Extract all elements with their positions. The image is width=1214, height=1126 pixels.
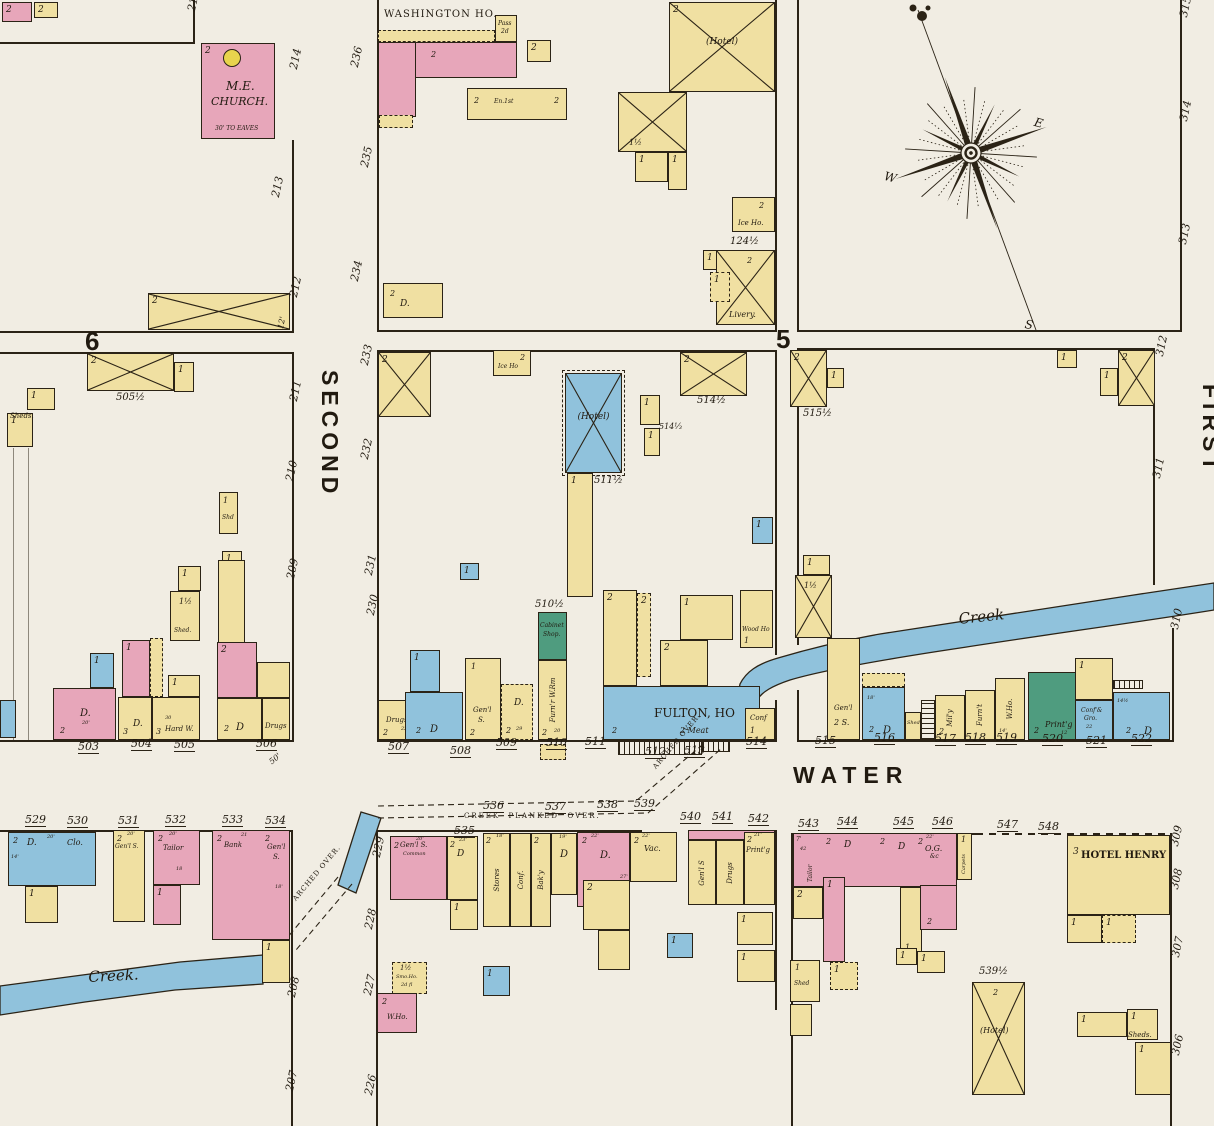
building-label: 2 xyxy=(91,357,97,366)
building-label: 23' xyxy=(459,838,467,843)
map-label: 533 xyxy=(222,814,243,827)
building-label: Conf. xyxy=(517,871,525,890)
building-label: 2 xyxy=(794,354,800,363)
building-label: 20' xyxy=(169,832,177,837)
building-label: 1 xyxy=(1131,1013,1137,1022)
building-label: 7' xyxy=(796,837,801,843)
building: 1 xyxy=(917,951,945,973)
building: 223'D xyxy=(447,836,478,900)
building: 1 xyxy=(25,886,58,923)
bank-building: 2Bank212Gen'lS.18' xyxy=(212,830,290,940)
map-label: 507 xyxy=(388,741,409,754)
building: 2 xyxy=(603,590,637,686)
map-label: 227 xyxy=(362,973,377,996)
building-label: 2 xyxy=(221,646,227,655)
map-label: 211 xyxy=(288,379,303,402)
building-label: 1 xyxy=(672,156,678,165)
building-label: 1 xyxy=(639,156,645,165)
hatch-strip xyxy=(702,741,730,752)
building-label: Shed xyxy=(794,981,809,987)
map-label: 534 xyxy=(265,815,286,828)
building: 1 xyxy=(567,473,593,597)
building-label: 42 xyxy=(800,847,806,852)
building-label: 20' xyxy=(47,835,55,840)
building: 2 xyxy=(378,352,431,417)
building-label: 2 xyxy=(612,727,617,735)
building-label: 1 xyxy=(1081,1016,1087,1025)
building-label: En.1st xyxy=(494,99,513,105)
map-label: 539½ xyxy=(979,967,1008,977)
building-label: 1 xyxy=(707,254,713,263)
building-label: 2 xyxy=(382,998,387,1006)
map-label: 308 xyxy=(1169,867,1184,890)
building-label: CHURCH. xyxy=(211,96,268,107)
building-label: 2 xyxy=(554,97,559,105)
map-label: 314 xyxy=(1178,99,1193,122)
building: 2 xyxy=(790,350,827,407)
map-label: 509 xyxy=(496,737,517,750)
building-label: Mil'y xyxy=(946,709,954,727)
building-label: 2 xyxy=(531,44,537,53)
building-label: 2 xyxy=(470,729,475,737)
map-label: 504 xyxy=(131,738,152,751)
building: 1 xyxy=(703,250,717,270)
creek-planked-over-label: CREEK PLANKED OVER. xyxy=(464,813,601,820)
map-label: 234 xyxy=(349,259,364,282)
building: 1½ xyxy=(795,575,832,638)
building: 220'Gen'l S. xyxy=(113,830,145,922)
building: 2 xyxy=(583,880,630,930)
building: 221'Print'g xyxy=(744,832,775,905)
building: 1 xyxy=(640,395,660,425)
building: 330Hard W. xyxy=(152,697,200,740)
building-label: 1 xyxy=(1139,1046,1145,1055)
building: 218'Stores xyxy=(483,833,510,927)
building: Pass2d xyxy=(495,15,517,42)
map-label: 548 xyxy=(1038,821,1059,834)
building-label: 2 xyxy=(474,97,479,105)
block-line xyxy=(0,331,294,333)
block-line xyxy=(797,330,1182,332)
map-label: 313 xyxy=(1177,222,1192,245)
map-label: 503 xyxy=(78,741,99,754)
block-line xyxy=(292,140,294,333)
building: 220'Tailor18 xyxy=(153,830,200,885)
map-label: 519 xyxy=(996,732,1017,745)
building-label: D xyxy=(560,850,568,860)
building-label: 2 xyxy=(747,836,752,844)
building: 1 xyxy=(803,555,830,575)
building-label: Stores xyxy=(493,869,501,892)
hatch-strip xyxy=(921,700,935,740)
building-label: Bank xyxy=(224,842,242,849)
building: 1 xyxy=(174,362,194,392)
church-dome xyxy=(223,49,241,67)
building-label: 1 xyxy=(29,890,35,899)
building: Drugs xyxy=(262,698,290,740)
map-label: 515½ xyxy=(803,409,832,419)
building-label: Tailor xyxy=(163,845,183,852)
building-label: 1 xyxy=(94,657,100,666)
building: 2W.Ho. xyxy=(377,993,417,1033)
building-label: 1 xyxy=(172,679,178,688)
building-label: 2 xyxy=(486,837,491,845)
map-label: 508 xyxy=(450,745,471,758)
building: Gen'l2 S. xyxy=(827,638,860,740)
street-label-water: WATER xyxy=(793,764,909,787)
building: 1 xyxy=(1075,658,1113,700)
map-label: 522 xyxy=(1131,733,1152,746)
building-label: Print'g xyxy=(1045,721,1072,729)
map-label: 207 xyxy=(284,1069,299,1092)
building-label: 2 xyxy=(534,837,539,845)
building-label: (Hotel) xyxy=(706,37,738,47)
building-label: 1 xyxy=(1104,372,1110,381)
building-label: W.Ho. xyxy=(1006,699,1014,720)
building-label: 1 xyxy=(827,881,833,890)
map-label: 514½ xyxy=(697,396,726,406)
building: 1 xyxy=(1057,350,1077,368)
map-label: 545 xyxy=(893,816,914,829)
building: 1 xyxy=(668,152,687,190)
map-label: 232 xyxy=(359,437,374,460)
building xyxy=(257,662,290,698)
building: 2Gen'l S.20'Common xyxy=(390,836,447,900)
building: 1 xyxy=(830,962,858,990)
building-label: 21 xyxy=(241,833,247,838)
building: 222'Vac. xyxy=(630,832,677,882)
building: 3D. xyxy=(118,697,152,740)
building-label: 1 xyxy=(834,966,840,975)
map-label: 310 xyxy=(1169,607,1184,630)
building-label: 2 xyxy=(224,725,229,733)
map-label: 520 xyxy=(1042,733,1063,746)
building-label: D. xyxy=(133,720,143,729)
map-label: 306 xyxy=(1170,1033,1185,1056)
map-label: 511½ xyxy=(594,476,623,486)
building-label: Shed. xyxy=(174,628,191,634)
building: 1 xyxy=(410,650,440,692)
map-label: 518 xyxy=(965,732,986,745)
building-label: 2 xyxy=(416,727,421,735)
building: 2D.20'Clo.14' xyxy=(8,832,96,886)
map-label: 215 xyxy=(186,0,201,12)
building-label: 1 xyxy=(744,637,749,645)
building-label: 1 xyxy=(266,944,272,953)
building: 2D. xyxy=(383,283,443,318)
building-label: Hard W. xyxy=(165,726,194,733)
map-label: 510 xyxy=(546,737,567,750)
building-label: 22' xyxy=(926,835,934,840)
map-label: 307 xyxy=(1170,935,1185,958)
building: Wood Ho1 xyxy=(740,590,773,648)
map-label: 544 xyxy=(837,816,858,829)
building: 1 xyxy=(635,152,668,182)
building-label: 1 xyxy=(750,727,755,735)
map-label: 547 xyxy=(997,819,1018,832)
building xyxy=(862,673,905,687)
building xyxy=(378,42,416,117)
building: 19'D xyxy=(551,833,577,895)
building-label: Ice Ho. xyxy=(738,220,763,227)
building: Conf. xyxy=(510,833,531,927)
building-label: 2 xyxy=(383,729,388,737)
building-label: 2 xyxy=(60,727,65,735)
map-label: 208 xyxy=(286,975,301,998)
building: 1Shed xyxy=(790,960,820,1002)
block-line xyxy=(797,348,1155,350)
building-label: Drugs xyxy=(726,862,734,884)
building-label: 2 xyxy=(1122,354,1128,363)
building-label: 1 xyxy=(157,889,163,898)
hotel-539: 2(Hotel) xyxy=(972,982,1025,1095)
sanborn-map: 222M.E.CHURCH.30' TO EAVES22Pass2d22En.1… xyxy=(0,0,1214,1126)
building-label: 20' xyxy=(416,837,424,842)
building: 2 xyxy=(660,640,708,686)
block-line xyxy=(13,448,14,740)
building-label: 14½ xyxy=(1117,699,1128,704)
building-label: &c xyxy=(930,854,939,860)
map-label: 505½ xyxy=(116,393,145,403)
map-label: 514⅓ xyxy=(659,423,682,431)
building-label: 22' xyxy=(591,834,599,839)
building: 2 xyxy=(87,353,174,391)
building-label: 1 xyxy=(1071,919,1077,928)
building: 1 xyxy=(1077,1012,1127,1037)
building-label: D xyxy=(457,850,464,859)
building-label: 2 xyxy=(664,644,670,653)
building-label: 2 xyxy=(927,918,932,926)
block-line xyxy=(775,350,777,655)
building-label: 18' xyxy=(275,885,283,890)
ice-house: 2Ice Ho. xyxy=(732,197,775,232)
building-label: D xyxy=(430,725,438,735)
building: 1 xyxy=(900,887,922,955)
building xyxy=(790,1004,812,1036)
map-label: 530 xyxy=(67,815,88,828)
building: 1 xyxy=(90,653,114,688)
building-label: 2 xyxy=(582,837,587,845)
building-label: 1 xyxy=(684,599,690,608)
building-label: 1 xyxy=(807,559,813,568)
building-label: Furn'r W.Rm xyxy=(549,678,557,723)
building: 1 xyxy=(1067,915,1102,943)
map-label: 546 xyxy=(932,816,953,829)
building-label: D. xyxy=(514,699,524,708)
block-line xyxy=(292,352,294,742)
building-label: (Hotel) xyxy=(980,1027,1009,1035)
map-label: 235 xyxy=(359,145,374,168)
building-label: 1 xyxy=(831,372,837,381)
building-label: M.E. xyxy=(226,80,255,92)
building-label: Furn't xyxy=(976,704,984,726)
creek-label-west: Creek. xyxy=(88,967,139,985)
map-label: 315 xyxy=(1178,0,1193,18)
building: 220Furn'r W.Rm xyxy=(538,660,567,740)
building xyxy=(379,115,413,128)
building: 2 xyxy=(527,40,551,62)
building xyxy=(218,560,245,644)
map-label: 209 xyxy=(285,557,300,580)
building-label: 2 xyxy=(158,835,163,843)
street-label-first: FIRST xyxy=(1199,384,1214,475)
building: 2D xyxy=(405,692,463,740)
building xyxy=(378,30,495,42)
map-label: 214 xyxy=(288,47,303,70)
building-label: 2 xyxy=(634,837,639,845)
map-label: 233 xyxy=(359,343,374,366)
building: 1 xyxy=(667,933,693,958)
building-label: 18 xyxy=(176,867,182,872)
building-label: 29 xyxy=(516,727,522,732)
map-label: 124½ xyxy=(730,237,759,247)
building: 1Gen'lS.2 xyxy=(465,658,501,740)
building-label: Carpets xyxy=(962,854,967,874)
building: 1 xyxy=(450,900,478,930)
building-label: W.Ho. xyxy=(387,1014,408,1021)
building-label: 1 xyxy=(644,399,650,408)
building: 1½ xyxy=(618,92,687,152)
map-label: 539 xyxy=(634,798,655,811)
building-label: 2 xyxy=(38,6,44,15)
building-label: 1 xyxy=(900,952,906,961)
building-label: 1 xyxy=(464,567,470,576)
building-label: Tailor xyxy=(808,865,814,882)
building: Gen'l S xyxy=(688,840,716,905)
building-label: 2 xyxy=(450,841,455,849)
building-label: 2 xyxy=(587,884,593,893)
map-label: 538 xyxy=(597,799,618,812)
building-label: Clo. xyxy=(67,839,83,847)
building-label: 1½ xyxy=(179,598,192,606)
cabinet-shop: CabinetShop. xyxy=(538,612,567,660)
map-label: 229 xyxy=(371,835,386,858)
building: 1 xyxy=(752,517,773,544)
building: 2Ice Ho xyxy=(493,350,531,376)
building-label: 2 xyxy=(1034,727,1039,735)
building: 2 xyxy=(2,2,32,22)
building: 1 xyxy=(168,675,200,697)
building-label: 1½ xyxy=(400,965,411,972)
map-label: 514 xyxy=(746,736,767,749)
building-label: D. xyxy=(80,709,91,719)
building-label: 1 xyxy=(454,904,460,913)
building: 2 xyxy=(680,352,747,396)
building-label: 2 xyxy=(382,356,388,365)
building-label: 19' xyxy=(559,835,567,840)
compass-label-e: E xyxy=(1033,116,1045,130)
building-label: 2 xyxy=(747,257,752,265)
building-label: Gen'l S. xyxy=(115,844,139,850)
map-label: 212 xyxy=(288,275,303,298)
map-label: 516 xyxy=(874,732,895,745)
building-label: 30' TO EAVES xyxy=(215,126,258,132)
building-label: 3 xyxy=(156,728,161,736)
map-label: 236 xyxy=(349,45,364,68)
building: Drugs xyxy=(716,840,744,905)
building: D.20'2 xyxy=(53,688,116,740)
building-label: 1 xyxy=(223,497,228,505)
building: 1½Smo.Ho.2d fl xyxy=(392,962,427,994)
building: 1Carpets xyxy=(957,833,972,880)
building-label: 1 xyxy=(648,432,654,441)
building-label: 2d xyxy=(501,29,509,35)
building-label: 1 xyxy=(182,570,188,579)
building-label: Cabinet xyxy=(540,623,564,629)
building: 1 xyxy=(153,885,181,925)
building-label: 2 xyxy=(117,835,122,843)
building-label: 2 xyxy=(217,835,222,843)
building-label: 20' xyxy=(127,832,135,837)
map-label: 309 xyxy=(1169,824,1184,847)
building-label: Vac. xyxy=(644,845,661,853)
building: 2 xyxy=(920,885,957,930)
building-label: 1 xyxy=(31,392,37,401)
building: 1Shd xyxy=(219,492,238,534)
building-label: 1 xyxy=(671,937,677,946)
building-label: 2 xyxy=(673,6,679,15)
building-label: 1 xyxy=(741,954,747,963)
building: 1 xyxy=(1100,368,1118,396)
map-label: 506 xyxy=(256,738,277,751)
map-label: 50' xyxy=(268,752,283,766)
building-label: (Hotel) xyxy=(577,412,609,422)
block-line xyxy=(377,330,777,332)
building-label: Gen'l xyxy=(473,707,491,714)
building: 1 xyxy=(737,912,773,945)
block-line xyxy=(1180,0,1182,332)
building-label: 2 xyxy=(431,51,436,59)
building: 1 xyxy=(262,940,290,983)
building: 1 xyxy=(737,950,775,982)
building-label: Gen'l S. xyxy=(400,842,427,849)
building-label: Gen'l S xyxy=(698,860,706,885)
building-label: 3 xyxy=(1073,848,1079,857)
building: 1 xyxy=(460,563,479,580)
map-label: 511 xyxy=(585,736,606,749)
building-label: 2 xyxy=(390,290,395,298)
map-label: 540 xyxy=(680,811,701,824)
hatch-strip xyxy=(1113,680,1143,689)
building-label: 1 xyxy=(487,970,493,979)
building xyxy=(598,930,630,970)
map-label: Sheds. xyxy=(10,413,34,420)
building-label: D xyxy=(898,843,905,852)
building-label: 2 xyxy=(205,47,211,56)
building-label: 22' xyxy=(642,834,650,839)
building-label: Shop. xyxy=(543,632,560,638)
map-label: 513 xyxy=(684,745,705,758)
block-line xyxy=(775,700,777,742)
building-label: HOTEL HENRY xyxy=(1081,851,1166,861)
building-label: Smo.Ho. xyxy=(396,975,418,980)
building-label: 1 xyxy=(921,955,927,964)
building-label: Drugs xyxy=(265,723,287,730)
building: 1½Shed. xyxy=(170,591,200,641)
map-label: 517 xyxy=(935,733,956,746)
building-label: Shed xyxy=(907,721,920,726)
building-label: 3 xyxy=(123,728,128,736)
building-label: D xyxy=(236,723,244,733)
building-label: 21' xyxy=(754,833,762,838)
building-label: 2 xyxy=(880,838,885,846)
block-line xyxy=(797,690,799,742)
block-line xyxy=(1172,628,1174,742)
building: 1 xyxy=(823,877,845,962)
building: 1 xyxy=(27,388,55,410)
building-label: 2 xyxy=(641,597,647,606)
building: Shed xyxy=(905,712,921,740)
